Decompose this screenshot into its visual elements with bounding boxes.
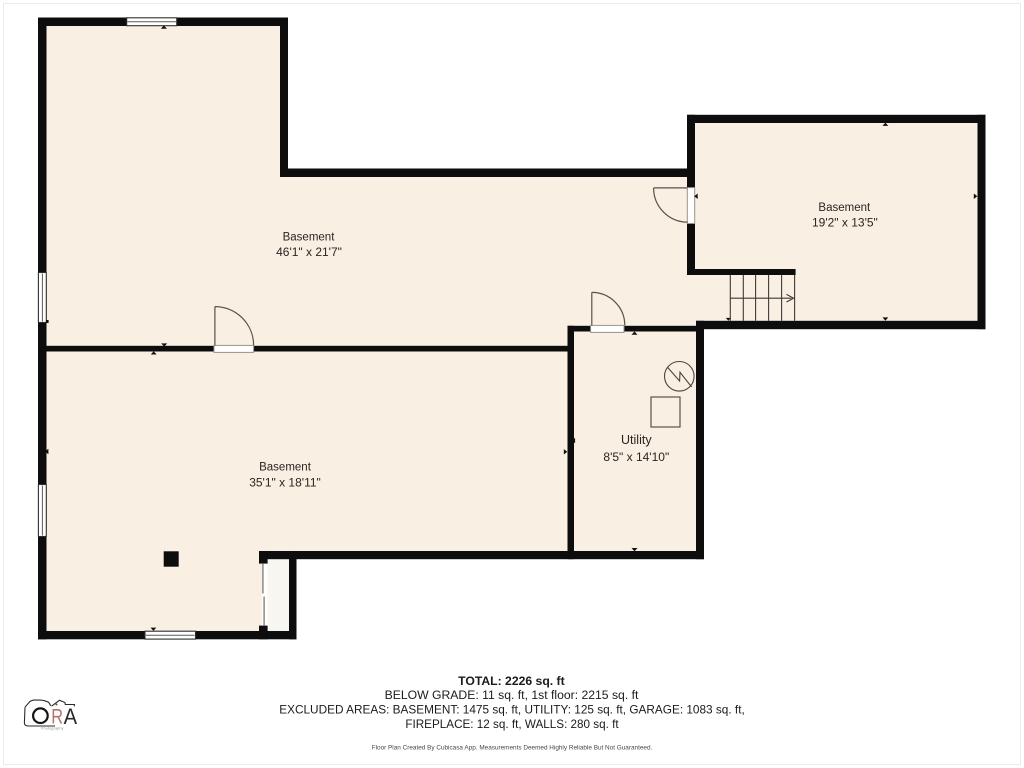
svg-text:Floor Plan Created By Cubicasa: Floor Plan Created By Cubicasa App. Meas… [372, 745, 653, 752]
svg-text:Basement: Basement [283, 232, 336, 244]
svg-text:BELOW GRADE: 11 sq. ft, 1st fl: BELOW GRADE: 11 sq. ft, 1st floor: 2215 … [385, 688, 639, 702]
svg-text:8'5" x 14'10": 8'5" x 14'10" [603, 450, 669, 464]
svg-text:TOTAL: 2226 sq. ft: TOTAL: 2226 sq. ft [458, 674, 565, 688]
svg-text:Utility: Utility [621, 433, 652, 447]
svg-text:46'1" x 21'7": 46'1" x 21'7" [276, 245, 342, 259]
svg-text:Basement: Basement [818, 202, 871, 214]
svg-text:Basement: Basement [259, 462, 312, 474]
svg-text:A: A [64, 705, 78, 729]
svg-text:FIREPLACE: 12 sq. ft, WALLS: 2: FIREPLACE: 12 sq. ft, WALLS: 280 sq. ft [405, 718, 619, 731]
svg-text:19'2" x 13'5": 19'2" x 13'5" [812, 216, 878, 230]
svg-text:R: R [51, 705, 63, 728]
svg-text:35'1" x 18'11": 35'1" x 18'11" [249, 476, 321, 490]
svg-text:Photography: Photography [41, 727, 64, 731]
svg-text:EXCLUDED AREAS: BASEMENT: 1475: EXCLUDED AREAS: BASEMENT: 1475 sq. ft, U… [279, 702, 745, 716]
